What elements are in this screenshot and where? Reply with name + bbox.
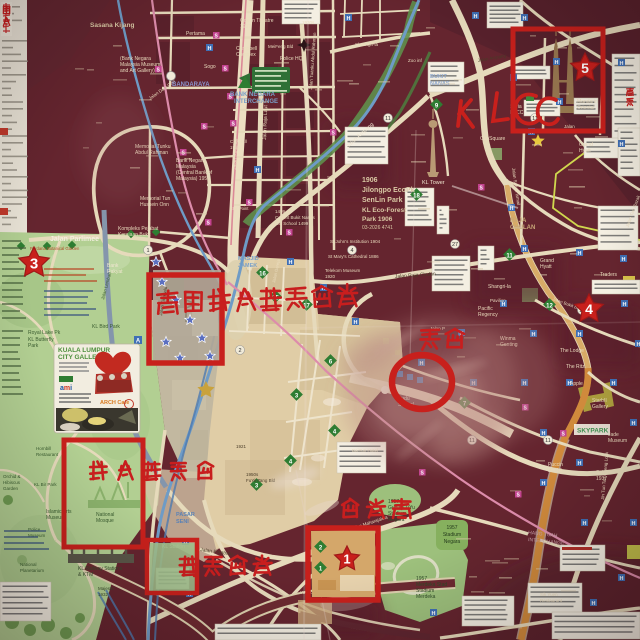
svg-text:H: H <box>432 611 436 617</box>
svg-text:1921: 1921 <box>236 444 247 449</box>
svg-text:Shangri-la: Shangri-la <box>488 284 511 290</box>
svg-text:The Lodge: The Lodge <box>560 348 584 354</box>
svg-text:11: 11 <box>545 438 551 444</box>
svg-text:1932: 1932 <box>98 592 109 597</box>
svg-text:Hibiscus: Hibiscus <box>3 480 21 485</box>
svg-text:H: H <box>523 16 527 22</box>
svg-text:H: H <box>474 14 478 20</box>
svg-text:Zoo inf: Zoo inf <box>408 58 423 63</box>
svg-text:Garden: Garden <box>3 486 19 491</box>
svg-text:Perdana Botanical Garden: Perdana Botanical Garden <box>30 246 80 251</box>
svg-text:Jalan Raja Laut: Jalan Raja Laut <box>262 105 269 141</box>
svg-text:12: 12 <box>546 304 553 310</box>
svg-text:Merdeka: Merdeka <box>416 594 436 600</box>
svg-text:H: H <box>523 247 527 253</box>
svg-text:SenLin Park: SenLin Park <box>362 197 403 204</box>
svg-text:& KTM: & KTM <box>78 572 93 578</box>
svg-text:BANK NEGARA: BANK NEGARA <box>230 92 276 98</box>
svg-text:Restaurant: Restaurant <box>540 598 563 603</box>
svg-text:Regency: Regency <box>478 312 498 318</box>
svg-text:H: H <box>555 60 559 66</box>
svg-text:RAJA: RAJA <box>510 218 527 224</box>
svg-text:5: 5 <box>581 60 589 76</box>
svg-text:Girl School 1499: Girl School 1499 <box>275 221 309 226</box>
svg-text:Sik Yuen: Sik Yuen <box>540 592 558 597</box>
svg-text:H: H <box>558 100 562 106</box>
svg-text:H: H <box>542 481 546 487</box>
svg-text:and Art Gallery): and Art Gallery) <box>120 68 155 74</box>
svg-text:Jilongpo EcoPk: Jilongpo EcoPk <box>362 187 415 194</box>
svg-text:SKYPARK: SKYPARK <box>577 428 609 435</box>
svg-text:Hussein Onn: Hussein Onn <box>140 202 169 208</box>
svg-text:1906: 1906 <box>362 177 378 184</box>
svg-text:Negara: Negara <box>444 539 461 545</box>
svg-text:16: 16 <box>259 272 266 278</box>
svg-text:Pertama: Pertama <box>186 31 205 37</box>
svg-text:MeiFeng Bld: MeiFeng Bld <box>268 44 294 49</box>
svg-text:H: H <box>578 332 582 338</box>
svg-text:SENI: SENI <box>176 519 189 525</box>
svg-text:H: H <box>208 46 212 52</box>
svg-text:1937: 1937 <box>240 24 251 30</box>
svg-text:H: H <box>623 302 627 308</box>
svg-text:Park 1906: Park 1906 <box>362 216 393 223</box>
svg-text:St John's Institution 1904: St John's Institution 1904 <box>330 239 381 244</box>
svg-text:Royal Lake Pk: Royal Lake Pk <box>28 330 61 336</box>
svg-text:Jalan Parlimee: Jalan Parlimee <box>50 236 99 243</box>
svg-text:Mosque: Mosque <box>96 518 114 524</box>
svg-text:H: H <box>542 431 546 437</box>
svg-text:St Mary's Cathedral 1886: St Mary's Cathedral 1886 <box>328 254 379 259</box>
svg-text:CapSquare: CapSquare <box>480 136 506 142</box>
svg-text:Sogo: Sogo <box>204 64 216 70</box>
svg-text:Stadium: Stadium <box>443 532 461 538</box>
svg-text:Complex: Complex <box>236 52 256 58</box>
svg-text:27: 27 <box>452 242 458 248</box>
svg-text:H: H <box>592 601 596 607</box>
svg-text:1499: 1499 <box>275 209 286 214</box>
svg-text:MASJID: MASJID <box>238 256 259 262</box>
svg-text:Hornbill: Hornbill <box>36 446 51 451</box>
svg-text:H: H <box>578 251 582 257</box>
svg-text:Police HQ: Police HQ <box>280 56 303 62</box>
svg-text:1: 1 <box>146 248 149 254</box>
svg-text:Telekom Museum: Telekom Museum <box>325 268 361 273</box>
svg-text:Restaurant: Restaurant <box>36 452 59 457</box>
svg-text:Pavilion: Pavilion <box>490 298 506 303</box>
svg-text:H: H <box>637 342 640 348</box>
svg-text:1920: 1920 <box>325 274 336 279</box>
svg-text:Star Point: Star Point <box>230 206 249 211</box>
svg-text:Lot 10: Lot 10 <box>548 468 562 474</box>
svg-text:H: H <box>620 142 624 148</box>
svg-text:FuYinTang Bld: FuYinTang Bld <box>246 478 276 483</box>
svg-text:Park: Park <box>28 343 39 349</box>
svg-text:Apple: Apple <box>570 381 583 387</box>
svg-text:Kerajaan Bukit: Kerajaan Bukit <box>118 232 151 238</box>
svg-text:Shuangh-la: Shuangh-la <box>355 42 379 47</box>
svg-text:Jalan: Jalan <box>564 124 575 129</box>
svg-text:KL Tower: KL Tower <box>422 180 445 186</box>
svg-text:1936: 1936 <box>230 145 241 150</box>
svg-text:03-2026 4741: 03-2026 4741 <box>362 225 393 231</box>
svg-text:H: H <box>612 381 616 387</box>
svg-text:11: 11 <box>385 116 391 122</box>
svg-text:H: H <box>354 320 358 326</box>
svg-text:H: H <box>578 461 582 467</box>
svg-text:Hyatt: Hyatt <box>579 148 591 154</box>
svg-text:The Ritz: The Ritz <box>566 364 585 370</box>
svg-text:Covent Bukit Nanas: Covent Bukit Nanas <box>275 215 316 220</box>
svg-text:KL Eco-Forest: KL Eco-Forest <box>362 207 407 214</box>
svg-text:11: 11 <box>506 254 513 260</box>
svg-text:ami: ami <box>60 385 72 392</box>
svg-text:Museum: Museum <box>608 438 627 444</box>
svg-text:H: H <box>289 260 293 266</box>
svg-text:H: H <box>622 257 626 263</box>
svg-text:2: 2 <box>238 348 241 354</box>
svg-text:KL Bir Park: KL Bir Park <box>34 482 57 487</box>
svg-text:Hyatt: Hyatt <box>540 264 552 270</box>
svg-text:BUKIT: BUKIT <box>430 74 447 80</box>
svg-text:H: H <box>620 576 624 582</box>
svg-text:1: 1 <box>343 552 350 567</box>
svg-text:H: H <box>583 521 587 527</box>
svg-text:1957: 1957 <box>446 525 457 531</box>
svg-text:H: H <box>632 421 636 427</box>
svg-text:4: 4 <box>585 301 593 317</box>
svg-text:KL Bird Park: KL Bird Park <box>92 324 120 330</box>
svg-text:JAMEK: JAMEK <box>238 263 257 269</box>
svg-text:H: H <box>632 521 636 527</box>
svg-text:3: 3 <box>30 255 38 272</box>
svg-text:Majestic: Majestic <box>98 586 115 591</box>
svg-text:PASAR: PASAR <box>176 512 195 518</box>
svg-text:1950s: 1950s <box>246 472 259 477</box>
svg-text:National: National <box>20 562 37 567</box>
svg-text:City Hall: City Hall <box>230 139 247 144</box>
svg-text:Gallery: Gallery <box>592 404 608 410</box>
svg-text:Orchid &: Orchid & <box>3 474 21 479</box>
svg-text:H: H <box>620 61 624 67</box>
svg-text:H: H <box>256 168 260 174</box>
svg-text:H: H <box>347 16 351 22</box>
svg-text:BANDARAYA: BANDARAYA <box>172 82 210 88</box>
svg-text:Planetarium: Planetarium <box>20 568 44 573</box>
svg-text:Oriental: Oriental <box>577 105 595 111</box>
svg-text:Malaysia) 1959: Malaysia) 1959 <box>176 176 210 182</box>
svg-text:Sasana Kijang: Sasana Kijang <box>90 22 134 29</box>
